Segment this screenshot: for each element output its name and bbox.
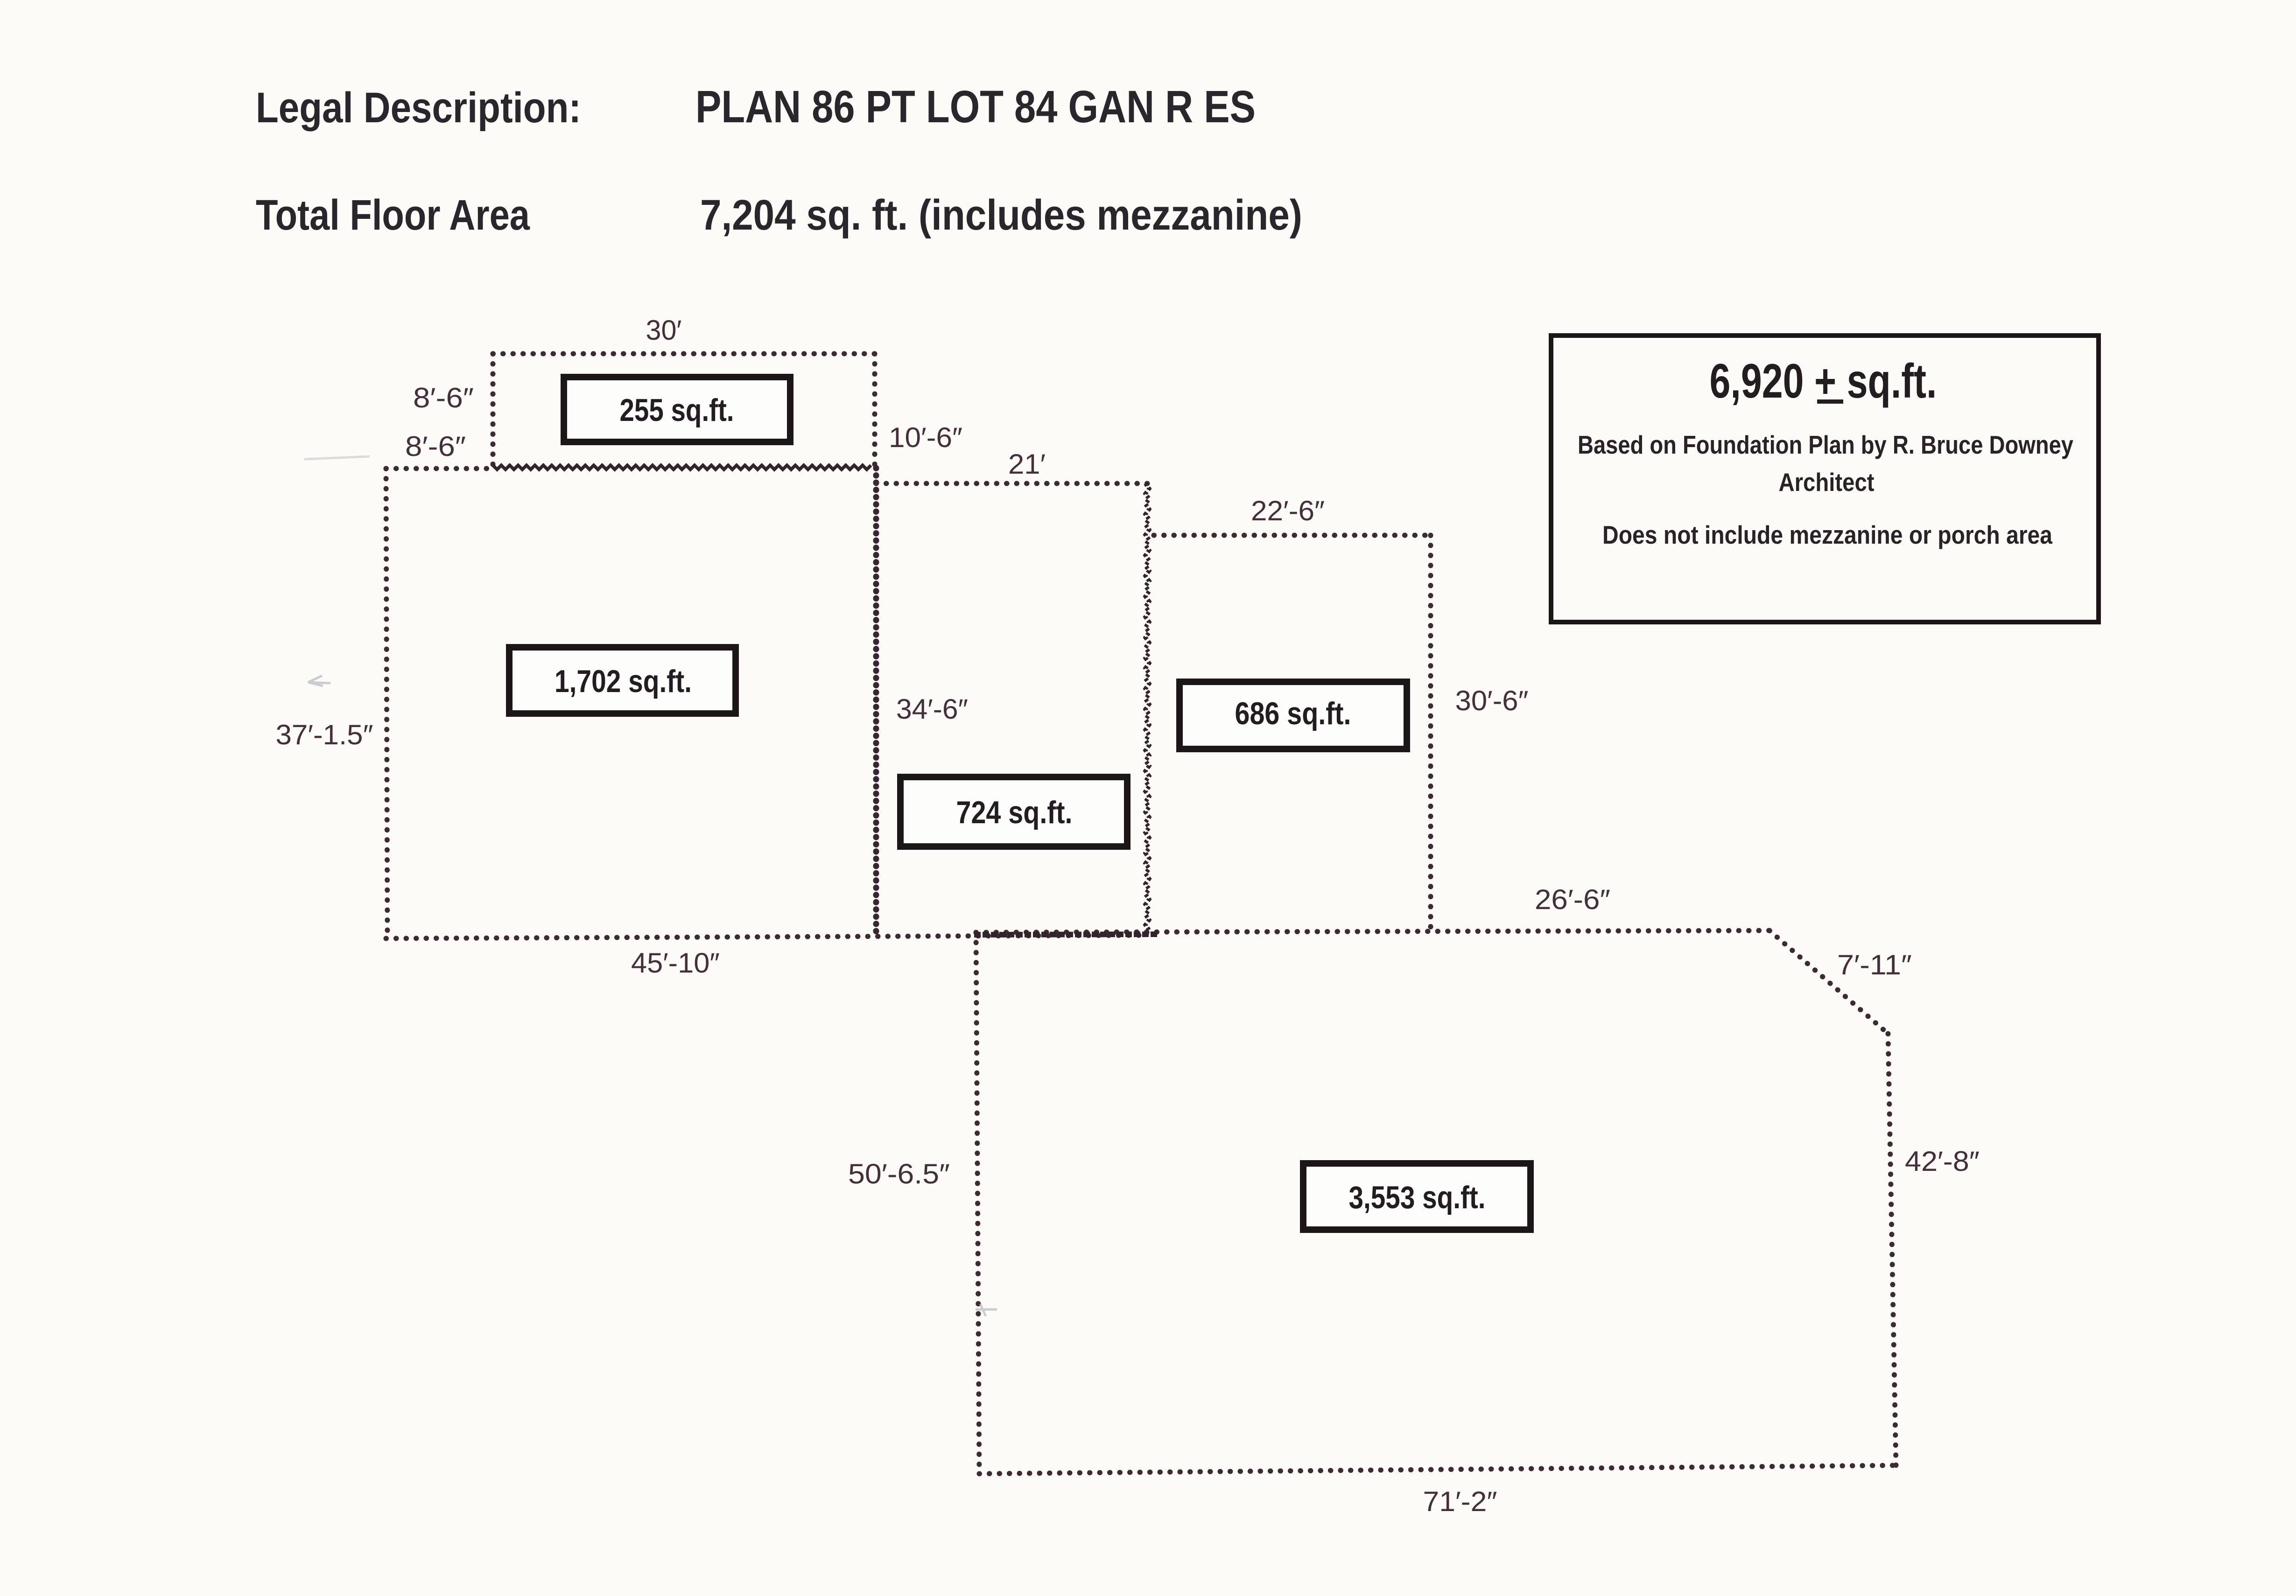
svg-text:26′-6″: 26′-6″ [1535, 884, 1610, 915]
svg-text:724 sq.ft.: 724 sq.ft. [956, 795, 1073, 830]
svg-text:34′-6″: 34′-6″ [896, 693, 968, 725]
svg-text:Based on Foundation Plan by R.: Based on Foundation Plan by R. Bruce Dow… [1578, 430, 2073, 459]
svg-text:30′-6″: 30′-6″ [1455, 685, 1529, 716]
svg-text:50′-6.5″: 50′-6.5″ [848, 1158, 950, 1190]
svg-text:7,204 sq. ft. (includes mezzan: 7,204 sq. ft. (includes mezzanine) [700, 191, 1302, 239]
svg-text:7′-11″: 7′-11″ [1837, 949, 1912, 980]
svg-text:30′: 30′ [646, 315, 682, 346]
svg-text:Does not include mezzanine or: Does not include mezzanine or porch area [1602, 520, 2052, 549]
svg-text:Legal Description:: Legal Description: [256, 84, 581, 132]
svg-text:37′-1.5″: 37′-1.5″ [276, 719, 373, 750]
svg-text:686 sq.ft.: 686 sq.ft. [1235, 696, 1351, 731]
svg-text:22′-6″: 22′-6″ [1251, 495, 1325, 526]
svg-text:71′-2″: 71′-2″ [1423, 1486, 1497, 1517]
svg-text:1,702 sq.ft.: 1,702 sq.ft. [555, 664, 692, 699]
svg-text:255 sq.ft.: 255 sq.ft. [620, 392, 734, 428]
svg-text:PLAN 86 PT LOT 84 GAN R ES: PLAN 86 PT LOT 84 GAN R ES [695, 81, 1256, 132]
svg-text:21′: 21′ [1008, 448, 1046, 480]
svg-text:3,553 sq.ft.: 3,553 sq.ft. [1349, 1180, 1486, 1215]
svg-text:42′-8″: 42′-8″ [1905, 1146, 1980, 1177]
svg-text:Total Floor Area: Total Floor Area [256, 191, 530, 239]
svg-text:10′-6″: 10′-6″ [889, 422, 962, 453]
svg-text:8′-6″: 8′-6″ [405, 431, 466, 462]
svg-text:8′-6″: 8′-6″ [413, 382, 474, 413]
svg-text:45′-10″: 45′-10″ [631, 947, 720, 979]
svg-text:Architect: Architect [1779, 468, 1875, 497]
